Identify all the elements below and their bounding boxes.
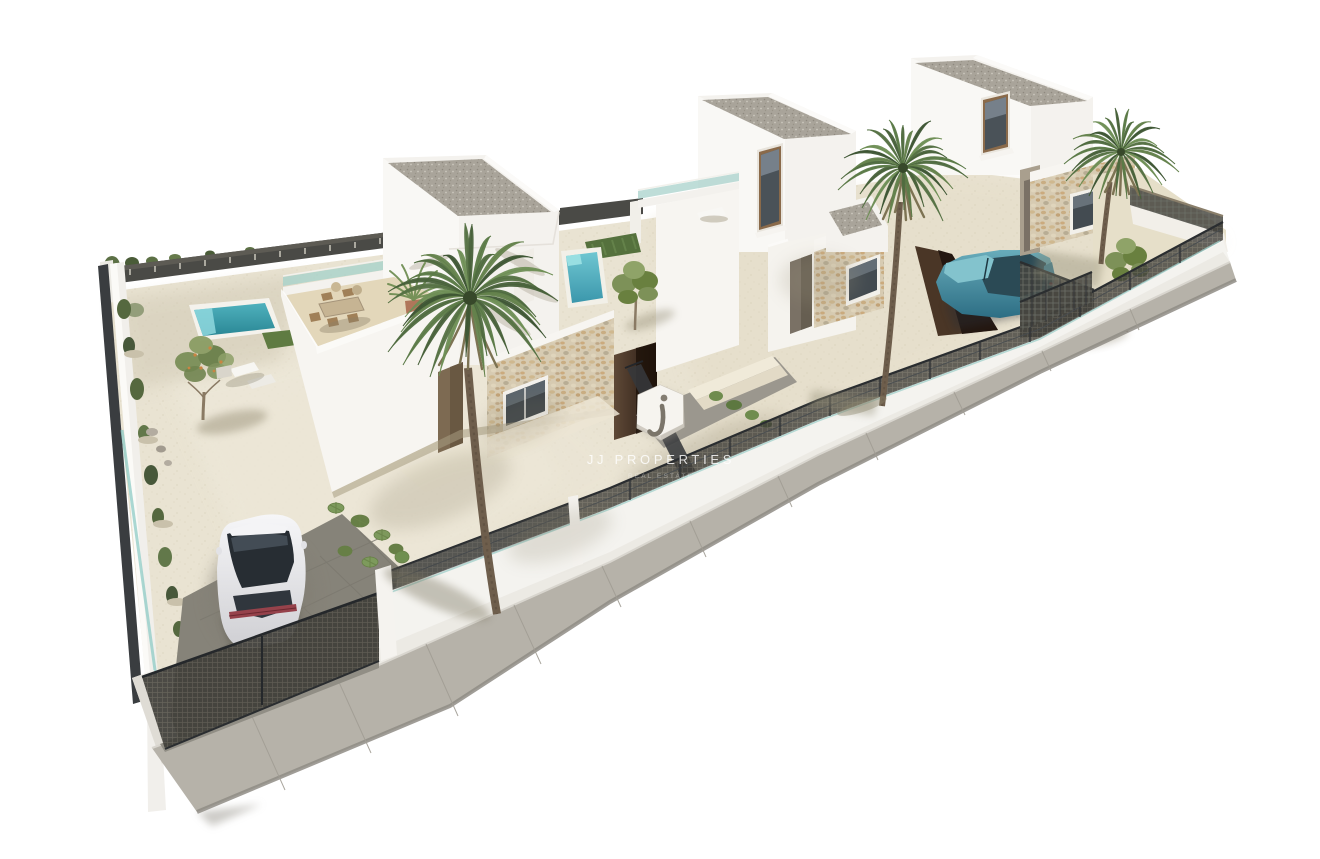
svg-text:REAL ESTATE: REAL ESTATE: [628, 473, 694, 480]
svg-text:JJ PROPERTIES: JJ PROPERTIES: [587, 452, 735, 467]
